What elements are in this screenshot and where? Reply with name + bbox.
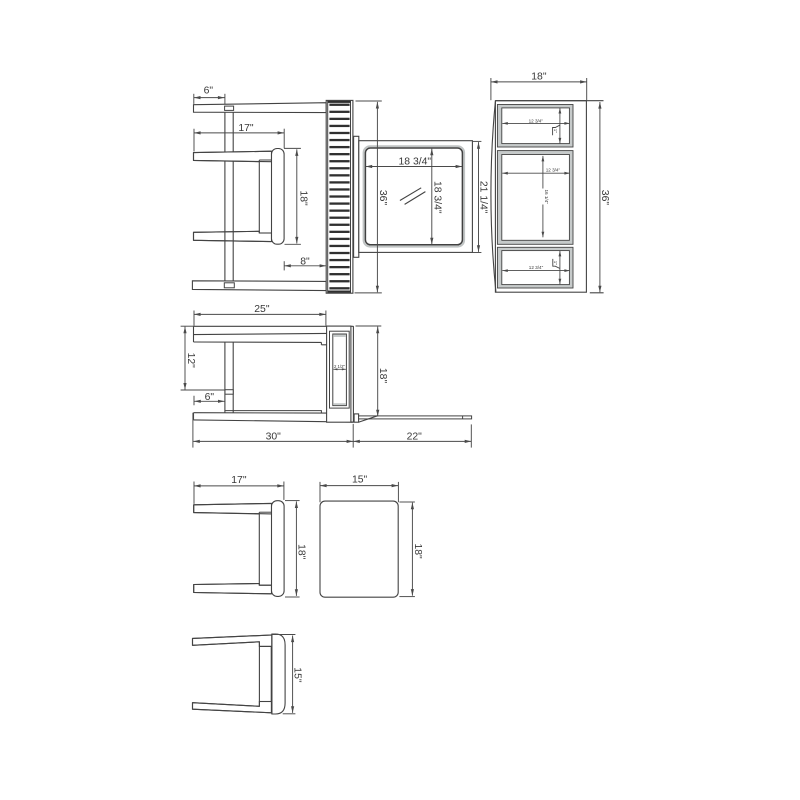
svg-text:12 3/4": 12 3/4" xyxy=(546,167,561,172)
svg-text:2 1/2": 2 1/2" xyxy=(334,364,346,369)
svg-text:36": 36" xyxy=(377,190,388,206)
svg-text:18 3/4": 18 3/4" xyxy=(431,181,442,214)
svg-text:18": 18" xyxy=(295,544,306,560)
svg-text:12 3/4": 12 3/4" xyxy=(529,265,544,270)
svg-text:16 1/4": 16 1/4" xyxy=(544,190,549,205)
svg-text:8": 8" xyxy=(300,256,310,267)
svg-text:22": 22" xyxy=(407,432,423,443)
svg-text:12 3/4": 12 3/4" xyxy=(529,118,544,123)
svg-text:25": 25" xyxy=(254,304,270,315)
svg-text:17": 17" xyxy=(238,123,254,134)
svg-text:1": 1" xyxy=(553,129,558,133)
svg-text:6": 6" xyxy=(204,85,214,96)
svg-text:1": 1" xyxy=(553,261,558,265)
svg-text:18": 18" xyxy=(531,72,547,83)
svg-text:6": 6" xyxy=(205,392,215,403)
svg-text:18": 18" xyxy=(298,191,309,207)
svg-text:12": 12" xyxy=(185,353,196,369)
svg-text:30": 30" xyxy=(266,432,282,443)
svg-text:15": 15" xyxy=(352,475,368,486)
svg-text:21 1/4": 21 1/4" xyxy=(478,181,489,214)
svg-text:36": 36" xyxy=(599,190,610,206)
svg-text:17": 17" xyxy=(231,475,247,486)
svg-text:18 3/4": 18 3/4" xyxy=(399,156,432,167)
svg-text:18": 18" xyxy=(412,544,423,560)
svg-text:18": 18" xyxy=(377,368,388,384)
svg-text:15": 15" xyxy=(292,667,303,683)
